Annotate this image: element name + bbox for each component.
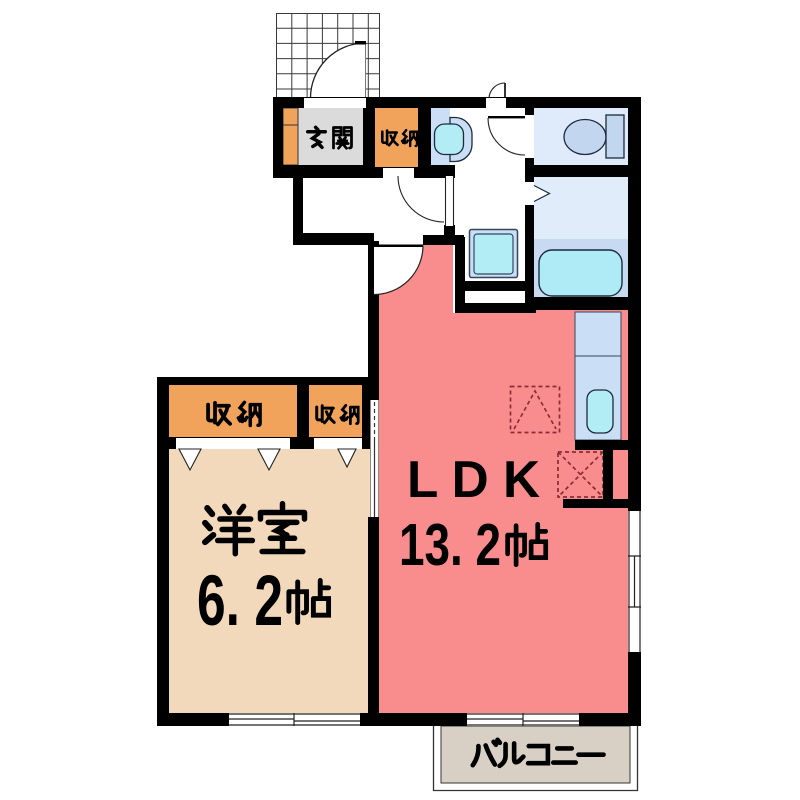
svg-text:L D K: L D K: [407, 451, 540, 509]
svg-text:13. 2: 13. 2: [399, 512, 501, 578]
svg-text:6. 2: 6. 2: [197, 562, 283, 641]
